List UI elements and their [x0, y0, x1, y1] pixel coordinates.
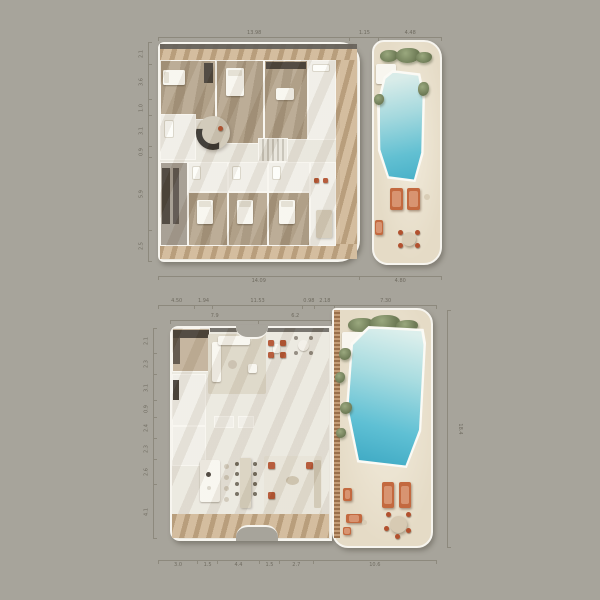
outdoor-sofa — [346, 514, 362, 523]
dimension-segment: 6.2 — [258, 320, 332, 324]
dimension-segment: 5.9 — [148, 157, 152, 230]
kitchen-counter — [266, 62, 306, 69]
sofa — [212, 342, 221, 382]
dimension-label: 4.4 — [235, 563, 243, 568]
dimension-segment: 4.1 — [153, 484, 157, 539]
dimension-label: 4.80 — [395, 279, 406, 284]
pool — [346, 326, 426, 468]
lower-floor-plan: 4.501.9411.530.982.187.30 7.96.2 2.12.33… — [145, 296, 461, 582]
dimension-segment: 7.9 — [170, 320, 258, 324]
dining-chair — [268, 352, 274, 358]
render-canvas: 13.981.154.48 2.13.61.03.10.95.92.5 14.0… — [0, 0, 600, 600]
dining-chair — [235, 462, 239, 466]
outdoor-round-table — [402, 232, 416, 246]
dimension-label: 3.0 — [174, 563, 182, 568]
wardrobe — [173, 380, 179, 400]
bar-stool — [224, 464, 229, 469]
dimension-segment: 4.50 — [158, 305, 194, 309]
bed — [237, 200, 253, 224]
dimension-label: 0.9 — [145, 405, 150, 413]
bathtub — [232, 166, 241, 180]
dining-table — [273, 344, 280, 353]
coffee-table — [228, 360, 237, 369]
cooktop — [206, 472, 211, 477]
armchair — [306, 462, 313, 469]
dimension-segment: 4.80 — [359, 276, 442, 280]
dimension-label: 1.94 — [198, 299, 209, 304]
dimension-segment: 18.4 — [447, 310, 451, 548]
side-table — [362, 520, 367, 525]
dimension-segment: 0.9 — [148, 146, 152, 158]
outdoor-chair — [415, 230, 420, 235]
dimension-line-right: 18.4 — [447, 310, 451, 548]
dimension-segment: 2.6 — [153, 459, 157, 484]
bathtub — [164, 120, 174, 138]
outdoor-chair — [415, 243, 420, 248]
pool-water — [349, 329, 424, 466]
dining-chair — [268, 340, 274, 346]
dimension-label: 18.4 — [457, 423, 462, 434]
dimension-label: 0.9 — [140, 148, 145, 156]
wardrobe — [162, 168, 170, 224]
dimension-label: 1.5 — [265, 563, 273, 568]
dimension-label: 2.3 — [145, 445, 150, 453]
dimension-segment: 2.5 — [148, 230, 152, 262]
dimension-segment: 3.0 — [158, 560, 197, 564]
dimension-label: 6.2 — [291, 314, 299, 319]
dining-chair — [253, 472, 257, 476]
stairs — [258, 138, 288, 162]
dimension-label: 1.15 — [359, 31, 370, 36]
dimension-label: 0.98 — [303, 299, 314, 304]
dimension-segment: 1.0 — [148, 99, 152, 115]
bathtub — [312, 64, 330, 72]
dining-chair — [323, 178, 328, 183]
cushion — [218, 126, 223, 131]
round-table — [298, 340, 309, 351]
dimension-segment: 13.98 — [158, 37, 349, 41]
dimension-label: 2.3 — [145, 360, 150, 368]
dimension-line-top-inner: 7.96.2 — [170, 320, 332, 324]
dimension-label: 1.0 — [140, 104, 145, 112]
dining-chair — [253, 462, 257, 466]
upper-pool-terrace — [372, 40, 442, 265]
dimension-segment: 2.1 — [148, 42, 152, 64]
dimension-segment: 4.4 — [217, 560, 259, 564]
dimension-segment: 1.5 — [259, 560, 279, 564]
dining-chair — [235, 472, 239, 476]
kitchen-cabinet — [173, 338, 180, 364]
dimension-segment: 3.1 — [153, 374, 157, 399]
bar-stool — [224, 486, 229, 491]
dimension-segment: 3.1 — [148, 115, 152, 146]
dimension-label: 14.09 — [252, 279, 266, 284]
dimension-label: 4.1 — [145, 508, 150, 516]
upper-house-footprint — [158, 42, 360, 262]
bed — [197, 200, 213, 224]
counter — [316, 210, 332, 238]
dimension-segment: 2.7 — [279, 560, 313, 564]
dining-chair — [253, 482, 257, 486]
sink — [207, 486, 211, 490]
dimension-label: 1.5 — [204, 563, 212, 568]
kitchen-island — [200, 460, 220, 502]
dimension-segment: 14.09 — [158, 276, 359, 280]
dining-chair — [235, 482, 239, 486]
dimension-label: 11.53 — [250, 299, 264, 304]
bathtub — [272, 166, 281, 180]
bar-stool — [224, 475, 229, 480]
dimension-line-bottom: 14.094.80 — [158, 276, 442, 280]
closet — [214, 416, 234, 428]
bed — [226, 68, 244, 96]
dimension-segment: 0.9 — [153, 400, 157, 417]
dimension-label: 2.7 — [292, 563, 300, 568]
dimension-line-bottom: 3.01.54.41.52.710.6 — [158, 560, 437, 564]
armchair — [248, 364, 257, 373]
sun-lounger — [382, 482, 394, 508]
dimension-label: 3.1 — [140, 127, 145, 135]
kitchen-counter — [173, 330, 209, 338]
armchair — [268, 492, 275, 499]
dimension-label: 2.4 — [145, 424, 150, 432]
sun-lounger — [399, 482, 411, 508]
dimension-segment: 2.1 — [153, 328, 157, 353]
outdoor-chair — [343, 527, 351, 535]
deck — [160, 244, 357, 259]
dimension-segment: 2.3 — [153, 353, 157, 374]
outdoor-chair — [375, 220, 383, 235]
dimension-label: 2.5 — [140, 242, 145, 250]
dimension-label: 5.9 — [140, 190, 145, 198]
dimension-segment: 1.15 — [349, 37, 378, 41]
bathtub — [192, 166, 201, 180]
chair — [294, 351, 298, 355]
wood-slat-wall — [334, 310, 340, 538]
dimension-segment: 0.98 — [302, 305, 314, 309]
outdoor-chair — [384, 526, 389, 531]
chair — [309, 336, 313, 340]
outdoor-chair — [406, 528, 411, 533]
outdoor-round-table — [390, 516, 407, 533]
dimension-segment: 1.94 — [194, 305, 211, 309]
closet — [238, 416, 254, 428]
dimension-segment: 10.6 — [313, 560, 437, 564]
sun-lounger — [390, 188, 403, 210]
dining-chair — [235, 492, 239, 496]
dimension-label: 7.30 — [380, 299, 391, 304]
dimension-label: 4.48 — [405, 31, 416, 36]
wardrobe — [173, 168, 179, 224]
shelf — [314, 460, 321, 508]
dimension-line-left: 2.13.61.03.10.95.92.5 — [148, 42, 152, 262]
dimension-segment: 2.18 — [314, 305, 334, 309]
chair — [294, 336, 298, 340]
dimension-segment: 11.53 — [212, 305, 303, 309]
upper-floor-plan: 13.981.154.48 2.13.61.03.10.95.92.5 14.0… — [140, 28, 456, 290]
dimension-label: 2.1 — [145, 337, 150, 345]
side-table — [424, 194, 430, 200]
pool-water — [380, 73, 423, 180]
bathroom — [308, 60, 336, 140]
outdoor-chair — [406, 512, 411, 517]
outdoor-chair — [343, 488, 352, 501]
dimension-label: 3.1 — [145, 384, 150, 392]
dining-chair — [280, 340, 286, 346]
bar-stool — [224, 497, 229, 502]
outdoor-chair — [386, 512, 391, 517]
dimension-segment: 1.5 — [197, 560, 217, 564]
bed — [163, 70, 185, 85]
dimension-label: 2.6 — [145, 468, 150, 476]
dimension-label: 2.1 — [140, 50, 145, 58]
lower-house-footprint — [170, 326, 332, 541]
chair — [309, 351, 313, 355]
deck — [336, 60, 357, 244]
outdoor-chair — [398, 230, 403, 235]
dimension-line-left: 2.12.33.10.92.42.32.64.1 — [153, 328, 157, 539]
dimension-label: 10.6 — [369, 563, 380, 568]
dimension-label: 2.18 — [319, 299, 330, 304]
lower-pool-terrace — [332, 308, 433, 548]
roof-edge — [160, 44, 357, 49]
dimension-label: 4.50 — [171, 299, 182, 304]
dimension-label: 3.6 — [140, 78, 145, 86]
dining-chair — [314, 178, 319, 183]
facade-curve-notch — [236, 525, 278, 541]
kitchen-island — [276, 88, 294, 100]
outdoor-chair — [395, 534, 400, 539]
dimension-segment: 2.3 — [153, 438, 157, 459]
coffee-table — [286, 476, 299, 485]
wardrobe — [204, 63, 213, 83]
dimension-segment: 3.6 — [148, 64, 152, 99]
bed — [279, 200, 295, 224]
outdoor-chair — [398, 243, 403, 248]
dining-table — [240, 458, 251, 508]
dining-chair — [253, 492, 257, 496]
sun-lounger — [407, 188, 420, 210]
dining-chair — [280, 352, 286, 358]
dimension-segment: 2.4 — [153, 417, 157, 438]
armchair — [268, 462, 275, 469]
dimension-label: 13.98 — [247, 31, 261, 36]
dimension-label: 7.9 — [211, 314, 219, 319]
kitchen — [264, 60, 308, 140]
